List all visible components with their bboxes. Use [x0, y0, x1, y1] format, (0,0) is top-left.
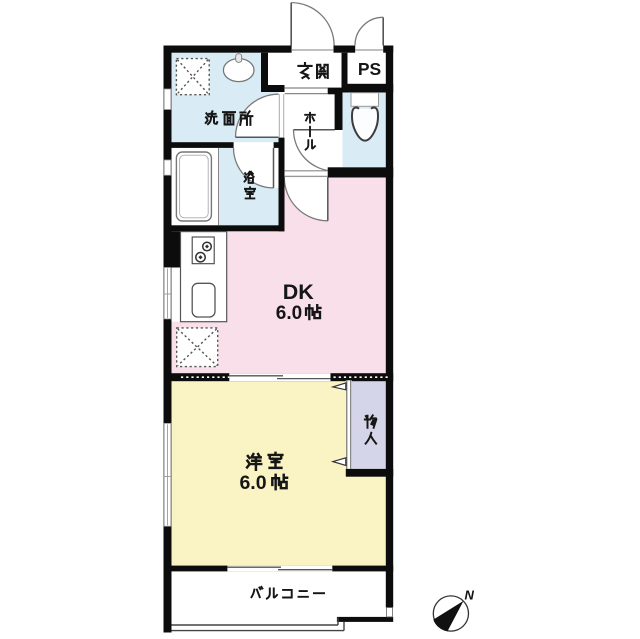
- svg-text:6.0: 6.0: [276, 303, 302, 324]
- svg-text:DK: DK: [283, 280, 315, 304]
- svg-text:N: N: [465, 588, 475, 603]
- svg-text:6.0: 6.0: [239, 472, 266, 494]
- svg-text:PS: PS: [358, 59, 381, 79]
